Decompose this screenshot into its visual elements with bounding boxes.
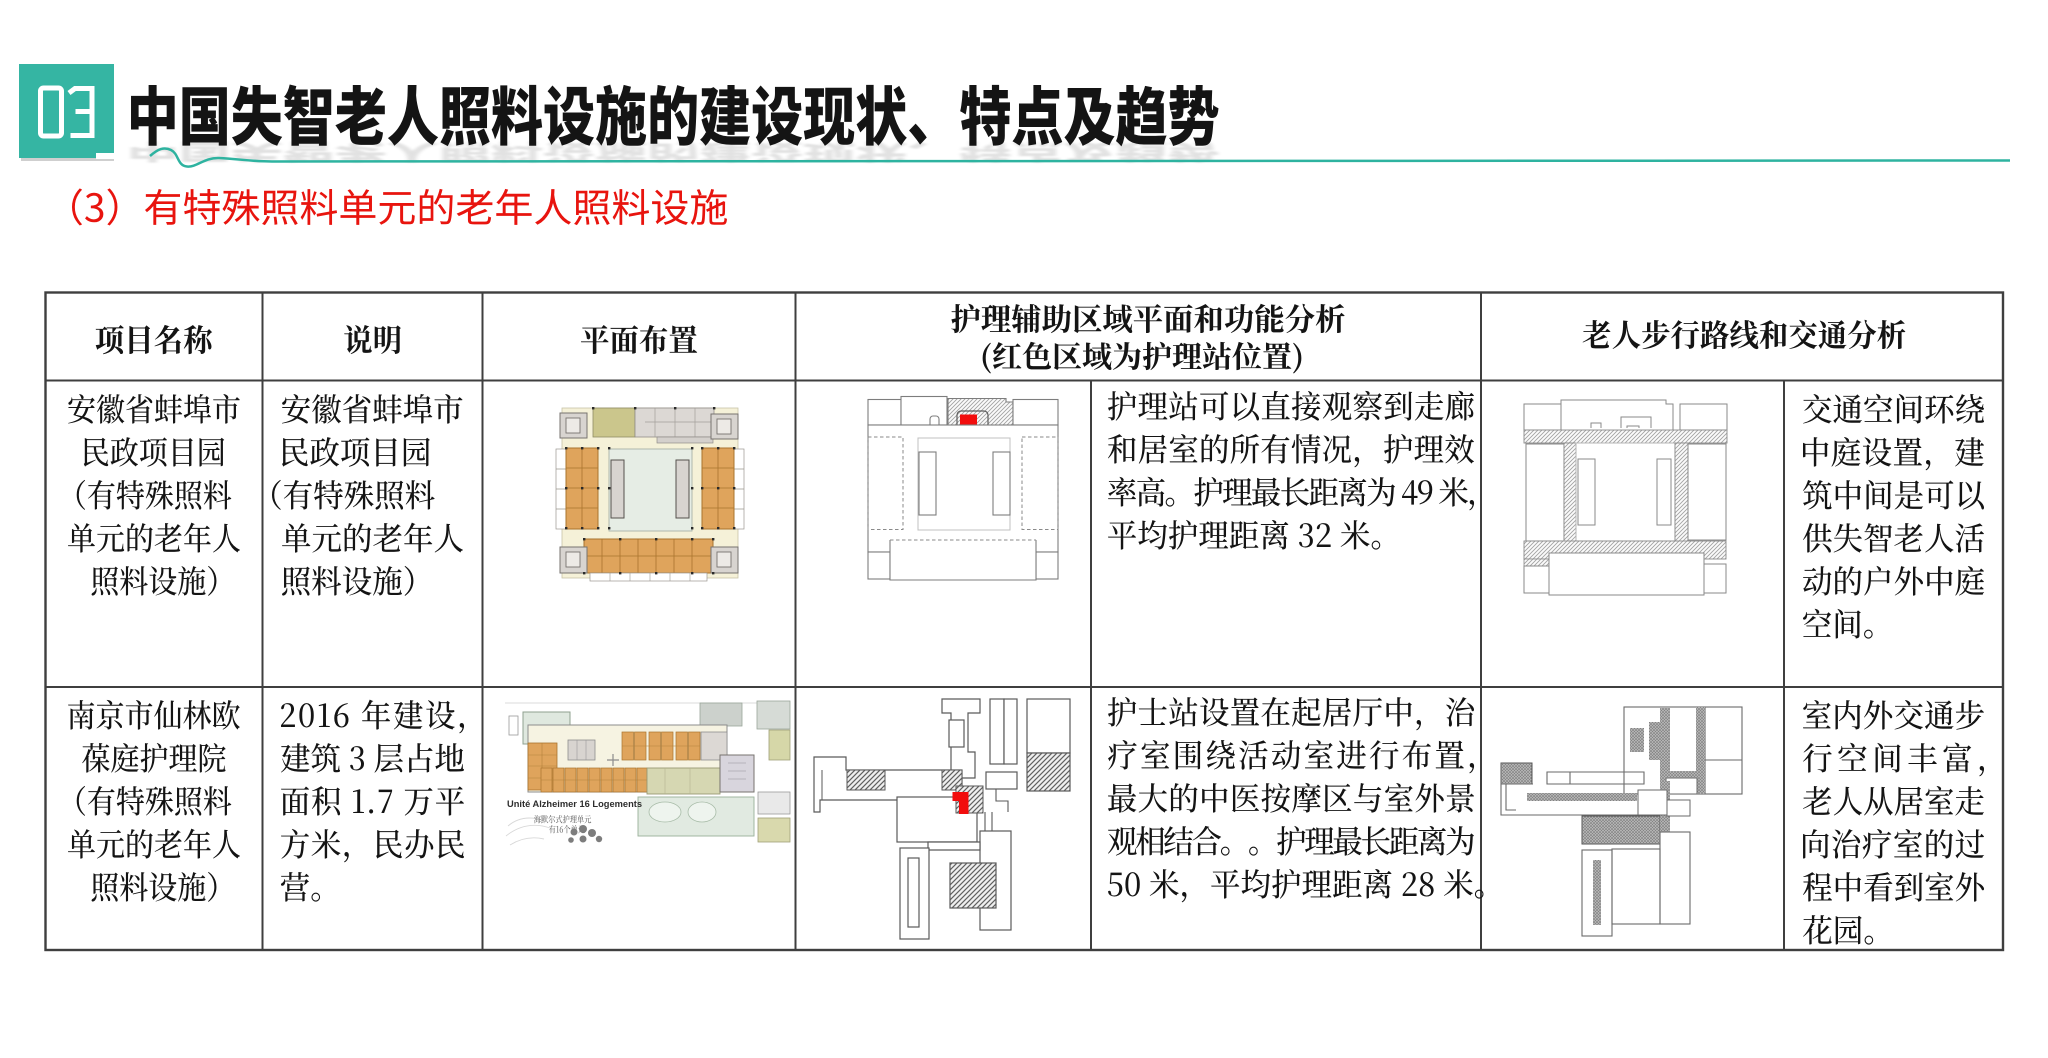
svg-text:Unité Alzheimer 16 Logements: Unité Alzheimer 16 Logements [507, 799, 642, 809]
